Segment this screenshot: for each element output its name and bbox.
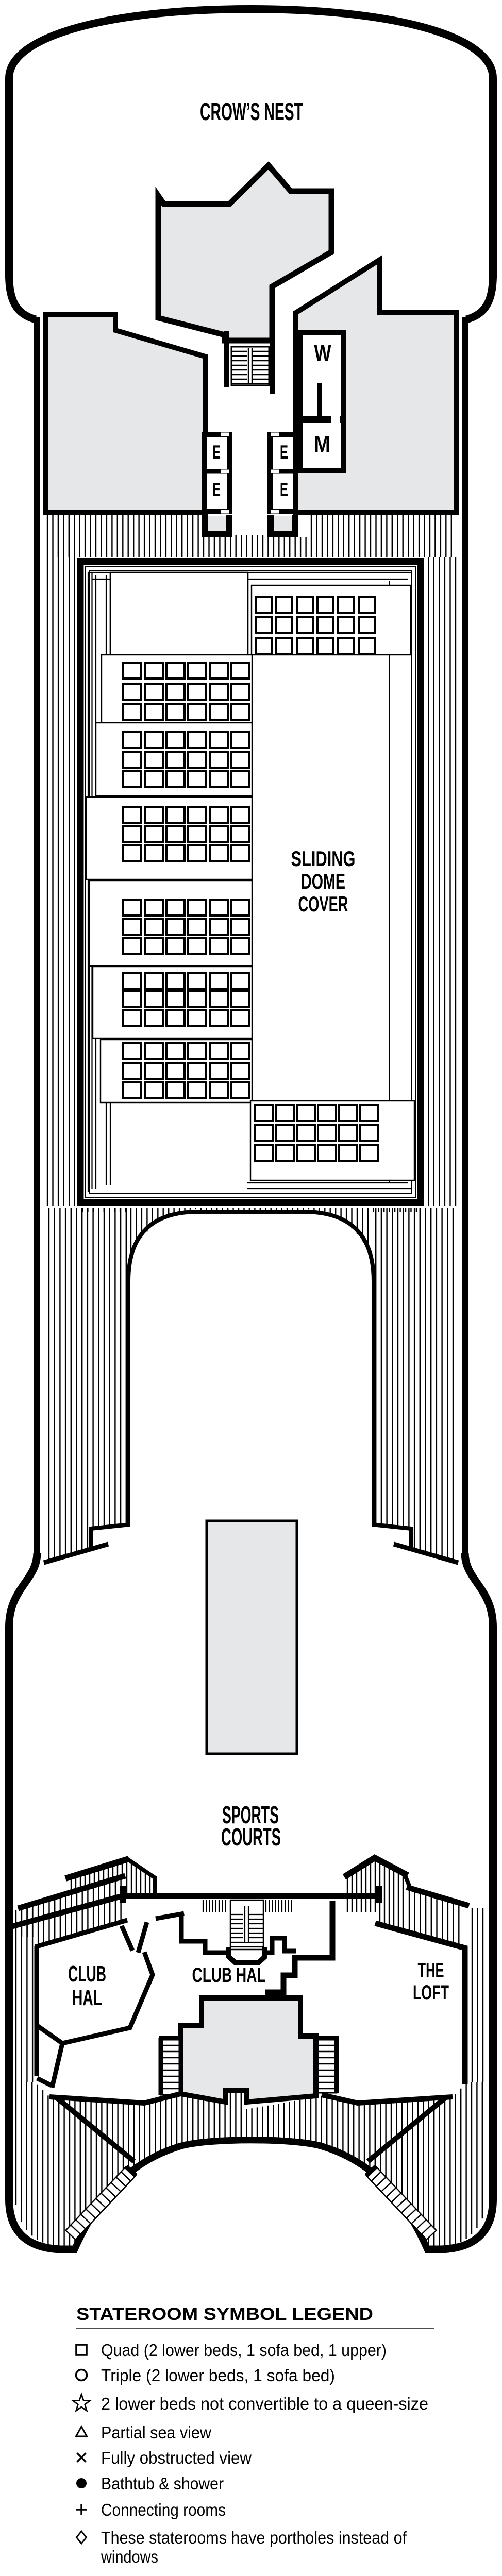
svg-text:M: M — [314, 432, 330, 457]
svg-text:STATEROOM SYMBOL LEGEND: STATEROOM SYMBOL LEGEND — [76, 2304, 373, 2324]
svg-text:DOME: DOME — [301, 869, 345, 893]
svg-text:CLUB HAL: CLUB HAL — [192, 1964, 266, 1987]
svg-text:HAL: HAL — [72, 1985, 102, 2010]
svg-text:CROW’S NEST: CROW’S NEST — [200, 98, 303, 126]
svg-text:E: E — [212, 479, 221, 500]
svg-text:Partial sea view: Partial sea view — [101, 2423, 211, 2442]
svg-text:E: E — [280, 442, 288, 463]
svg-text:Triple (2 lower beds, 1 sofa b: Triple (2 lower beds, 1 sofa bed) — [101, 2366, 335, 2385]
svg-text:SLIDING: SLIDING — [291, 846, 356, 871]
svg-text:windows: windows — [101, 2547, 158, 2566]
svg-text:CLUB: CLUB — [68, 1961, 106, 1987]
svg-text:2 lower beds not convertible t: 2 lower beds not convertible to a queen-… — [101, 2394, 428, 2413]
svg-text:E: E — [212, 442, 221, 463]
svg-text:Connecting rooms: Connecting rooms — [101, 2500, 226, 2519]
svg-text:Fully obstructed view: Fully obstructed view — [101, 2448, 252, 2467]
svg-text:E: E — [280, 479, 288, 500]
svg-text:LOFT: LOFT — [413, 1981, 449, 2004]
svg-text:THE: THE — [418, 1959, 444, 1982]
svg-text:Quad (2 lower beds, 1 sofa bed: Quad (2 lower beds, 1 sofa bed, 1 upper) — [101, 2341, 387, 2360]
svg-text:COURTS: COURTS — [221, 1824, 281, 1851]
svg-text:COVER: COVER — [298, 892, 348, 916]
svg-text:Bathtub & shower: Bathtub & shower — [101, 2474, 224, 2493]
svg-text:W: W — [314, 341, 331, 366]
svg-text:These staterooms have porthole: These staterooms have portholes instead … — [101, 2528, 407, 2547]
